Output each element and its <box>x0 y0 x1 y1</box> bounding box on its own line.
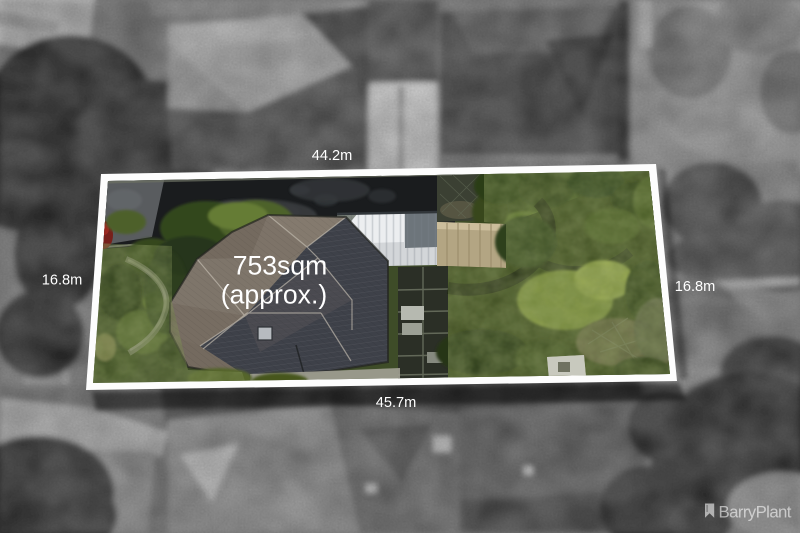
svg-text:16.8m: 16.8m <box>675 279 716 295</box>
svg-text:16.8m: 16.8m <box>42 273 83 289</box>
svg-text:753sqm: 753sqm <box>233 251 328 281</box>
svg-text:44.2m: 44.2m <box>312 148 353 164</box>
svg-text:BarryPlant: BarryPlant <box>719 503 792 522</box>
svg-text:(approx.): (approx.) <box>221 280 327 310</box>
svg-text:45.7m: 45.7m <box>376 395 417 411</box>
